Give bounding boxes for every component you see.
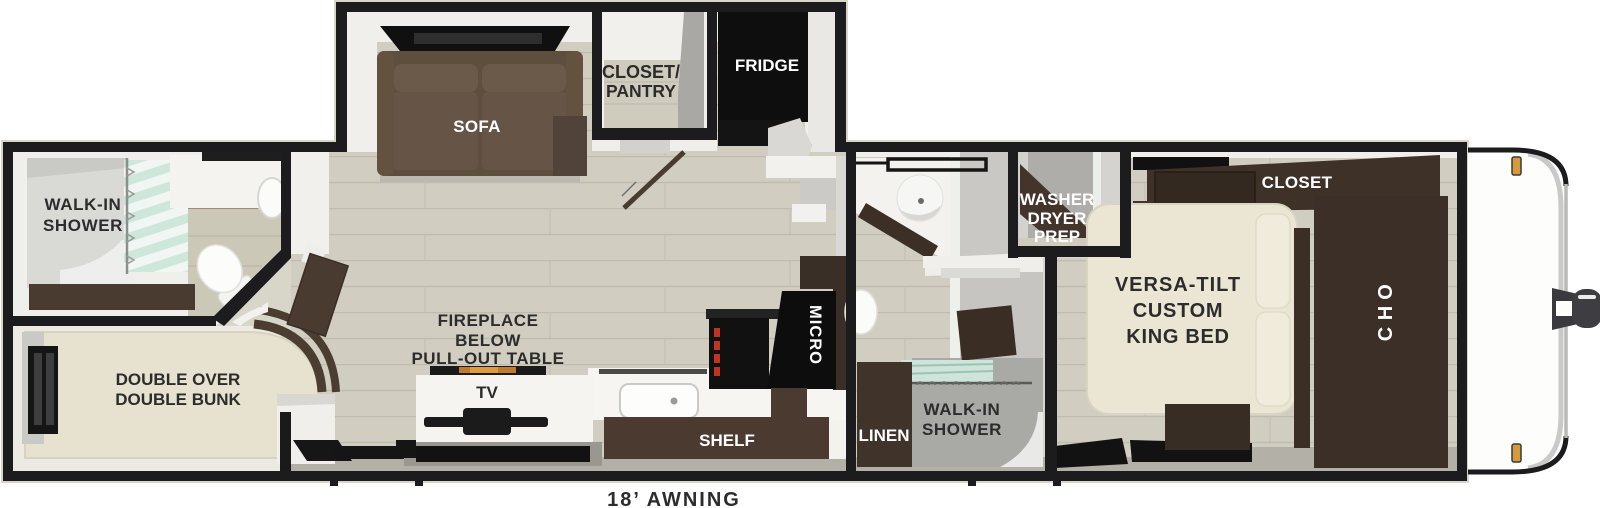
svg-text:18’ AWNING: 18’ AWNING [607,489,741,508]
svg-text:SHOWER: SHOWER [922,420,1002,439]
svg-text:BELOW: BELOW [455,331,521,350]
svg-text:WASHER: WASHER [1020,190,1095,209]
svg-text:CLOSET: CLOSET [1262,173,1333,192]
svg-text:SHOWER: SHOWER [43,216,123,235]
svg-text:TV: TV [476,383,498,402]
svg-text:MICRO: MICRO [806,305,824,365]
svg-text:FRIDGE: FRIDGE [735,56,799,75]
svg-text:DOUBLE OVER: DOUBLE OVER [116,370,241,389]
svg-text:WALK-IN: WALK-IN [45,195,122,214]
svg-text:VERSA-TILT: VERSA-TILT [1115,274,1241,296]
svg-text:PULL-OUT TABLE: PULL-OUT TABLE [411,349,564,368]
svg-text:SHELF: SHELF [699,431,755,450]
svg-text:DOUBLE BUNK: DOUBLE BUNK [115,390,241,409]
svg-text:DRYER: DRYER [1028,209,1087,228]
svg-text:CUSTOM: CUSTOM [1133,300,1224,322]
svg-text:PREP: PREP [1034,227,1080,246]
svg-text:FIREPLACE: FIREPLACE [438,311,539,330]
svg-text:SOFA: SOFA [453,117,501,136]
svg-text:H: H [1375,306,1397,320]
svg-text:CLOSET/: CLOSET/ [602,62,680,82]
svg-text:PANTRY: PANTRY [606,81,676,101]
svg-text:KING BED: KING BED [1126,326,1229,348]
svg-text:WALK-IN: WALK-IN [924,400,1001,419]
svg-text:C: C [1375,327,1397,341]
svg-text:O: O [1375,284,1397,300]
svg-text:LINEN: LINEN [859,426,910,445]
